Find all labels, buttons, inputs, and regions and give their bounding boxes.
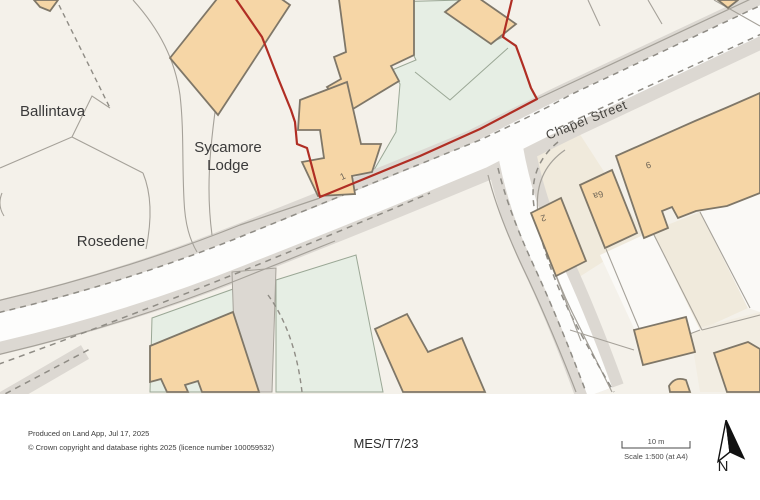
- site-plan-export: Ballintava Sycamore Lodge Rosedene Chape…: [0, 0, 760, 500]
- site-location-map: Ballintava Sycamore Lodge Rosedene Chape…: [0, 0, 760, 394]
- house-label-sycamore-lodge-line2: Lodge: [207, 157, 249, 174]
- scale-bar-distance-label: 10 m: [648, 437, 665, 446]
- attribution: Produced on Land App, Jul 17, 2025 © Cro…: [28, 427, 274, 455]
- house-label-ballintava: Ballintava: [20, 103, 86, 120]
- attribution-copyright-line: © Crown copyright and database rights 20…: [28, 441, 274, 455]
- attribution-produced-line: Produced on Land App, Jul 17, 2025: [28, 427, 274, 441]
- scale-bar: 10 m Scale 1:500 (at A4): [608, 428, 708, 466]
- building: [669, 379, 690, 392]
- north-arrow-needle: [713, 419, 744, 462]
- plan-reference: MES/T7/23: [306, 436, 466, 451]
- house-label-sycamore-lodge-line1: Sycamore: [194, 139, 262, 156]
- north-label: N: [718, 458, 729, 475]
- house-label-rosedene: Rosedene: [77, 233, 145, 250]
- scale-ratio-label: Scale 1:500 (at A4): [624, 452, 688, 461]
- north-arrow-icon: N: [700, 414, 756, 490]
